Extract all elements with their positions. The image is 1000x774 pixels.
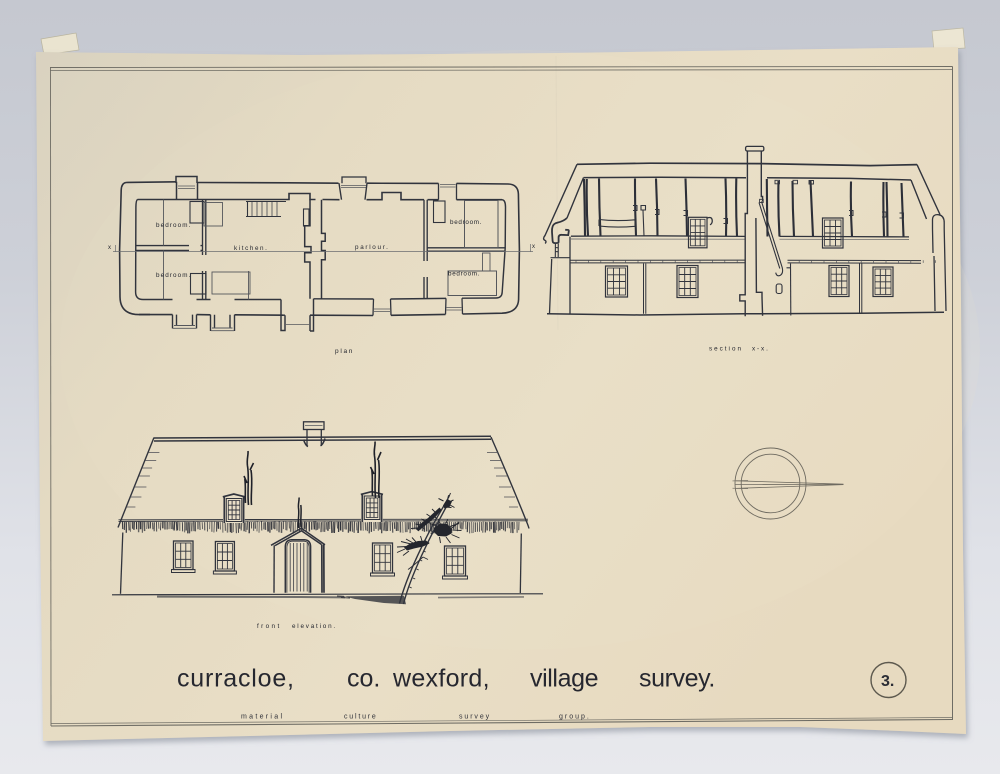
svg-text:plan: plan: [335, 348, 354, 355]
svg-text:bedroom.: bedroom.: [450, 219, 482, 226]
svg-text:front: front: [257, 623, 282, 630]
svg-text:co.: co.: [347, 665, 380, 693]
svg-text:survey.: survey.: [639, 665, 715, 693]
svg-text:elevation.: elevation.: [292, 623, 337, 630]
svg-text:bedroom.: bedroom.: [156, 222, 191, 229]
svg-text:3.: 3.: [881, 673, 894, 690]
svg-text:survey: survey: [459, 714, 491, 721]
svg-text:group.: group.: [559, 714, 591, 721]
svg-text:culture: culture: [344, 714, 378, 721]
svg-text:curracloe,: curracloe,: [177, 665, 295, 693]
svg-text:parlour.: parlour.: [355, 244, 390, 251]
svg-text:material: material: [241, 714, 284, 721]
svg-text:village: village: [530, 665, 598, 693]
svg-text:wexford,: wexford,: [392, 665, 490, 693]
svg-text:x: x: [532, 244, 535, 250]
svg-text:bedroom.: bedroom.: [448, 271, 480, 278]
svg-text:kitchen.: kitchen.: [234, 245, 269, 252]
svg-text:bedroom.: bedroom.: [156, 272, 191, 279]
svg-text:section: section: [709, 346, 743, 353]
svg-text:x: x: [108, 245, 111, 251]
svg-text:x-x.: x-x.: [752, 346, 770, 353]
